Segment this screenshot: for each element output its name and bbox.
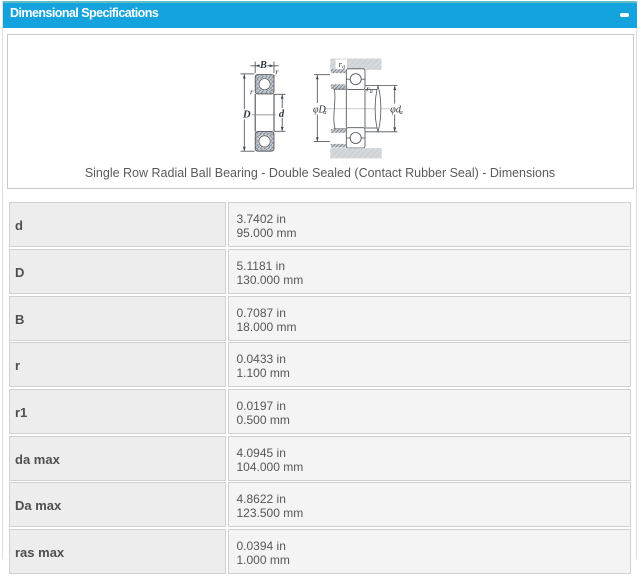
svg-text:a: a [400, 109, 403, 116]
svg-text:r: r [250, 87, 254, 97]
svg-text:r: r [275, 66, 279, 76]
svg-text:B: B [259, 60, 267, 71]
svg-text:d: d [279, 109, 285, 120]
svg-text:a: a [323, 109, 326, 116]
svg-text:a: a [370, 89, 373, 95]
svg-text:D: D [242, 109, 251, 120]
